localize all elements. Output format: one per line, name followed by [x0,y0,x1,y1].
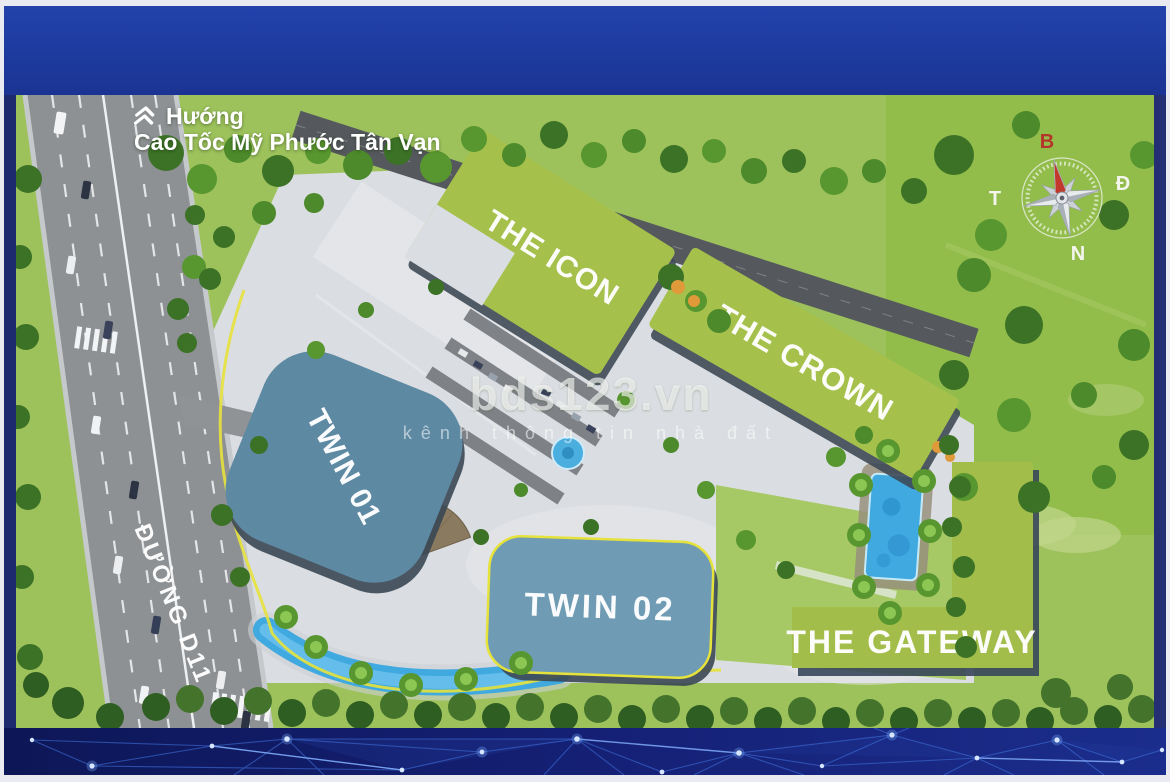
masterplan-render: THE ICON THE CROWN TWIN 01 TWIN 02 T [16,95,1154,728]
left-frame-strip [4,95,16,728]
top-banner [4,6,1166,95]
right-frame-strip [1154,95,1166,728]
fountain [552,437,584,469]
building-label-the-gateway: THE GATEWAY [786,624,1037,660]
bottom-banner [4,728,1166,775]
network-pattern [4,728,1166,775]
road-d11 [25,95,272,728]
direction-line2: Cao Tốc Mỹ Phước Tân Vạn [134,129,441,155]
compass-label-east: Đ [1116,173,1130,195]
double-chevron-up-icon [134,106,158,126]
building-label-twin-02: TWIN 02 [524,585,676,627]
compass-label-west: T [989,188,1001,210]
compass-label-south: N [1071,243,1085,265]
compass-label-north: B [1040,131,1054,153]
screenshot-root: THE ICON THE CROWN TWIN 01 TWIN 02 T [0,0,1170,782]
direction-label: Hướng Cao Tốc Mỹ Phước Tân Vạn [134,103,441,155]
masterplan-scene: THE ICON THE CROWN TWIN 01 TWIN 02 T [16,95,1154,728]
direction-line1: Hướng [166,103,244,129]
